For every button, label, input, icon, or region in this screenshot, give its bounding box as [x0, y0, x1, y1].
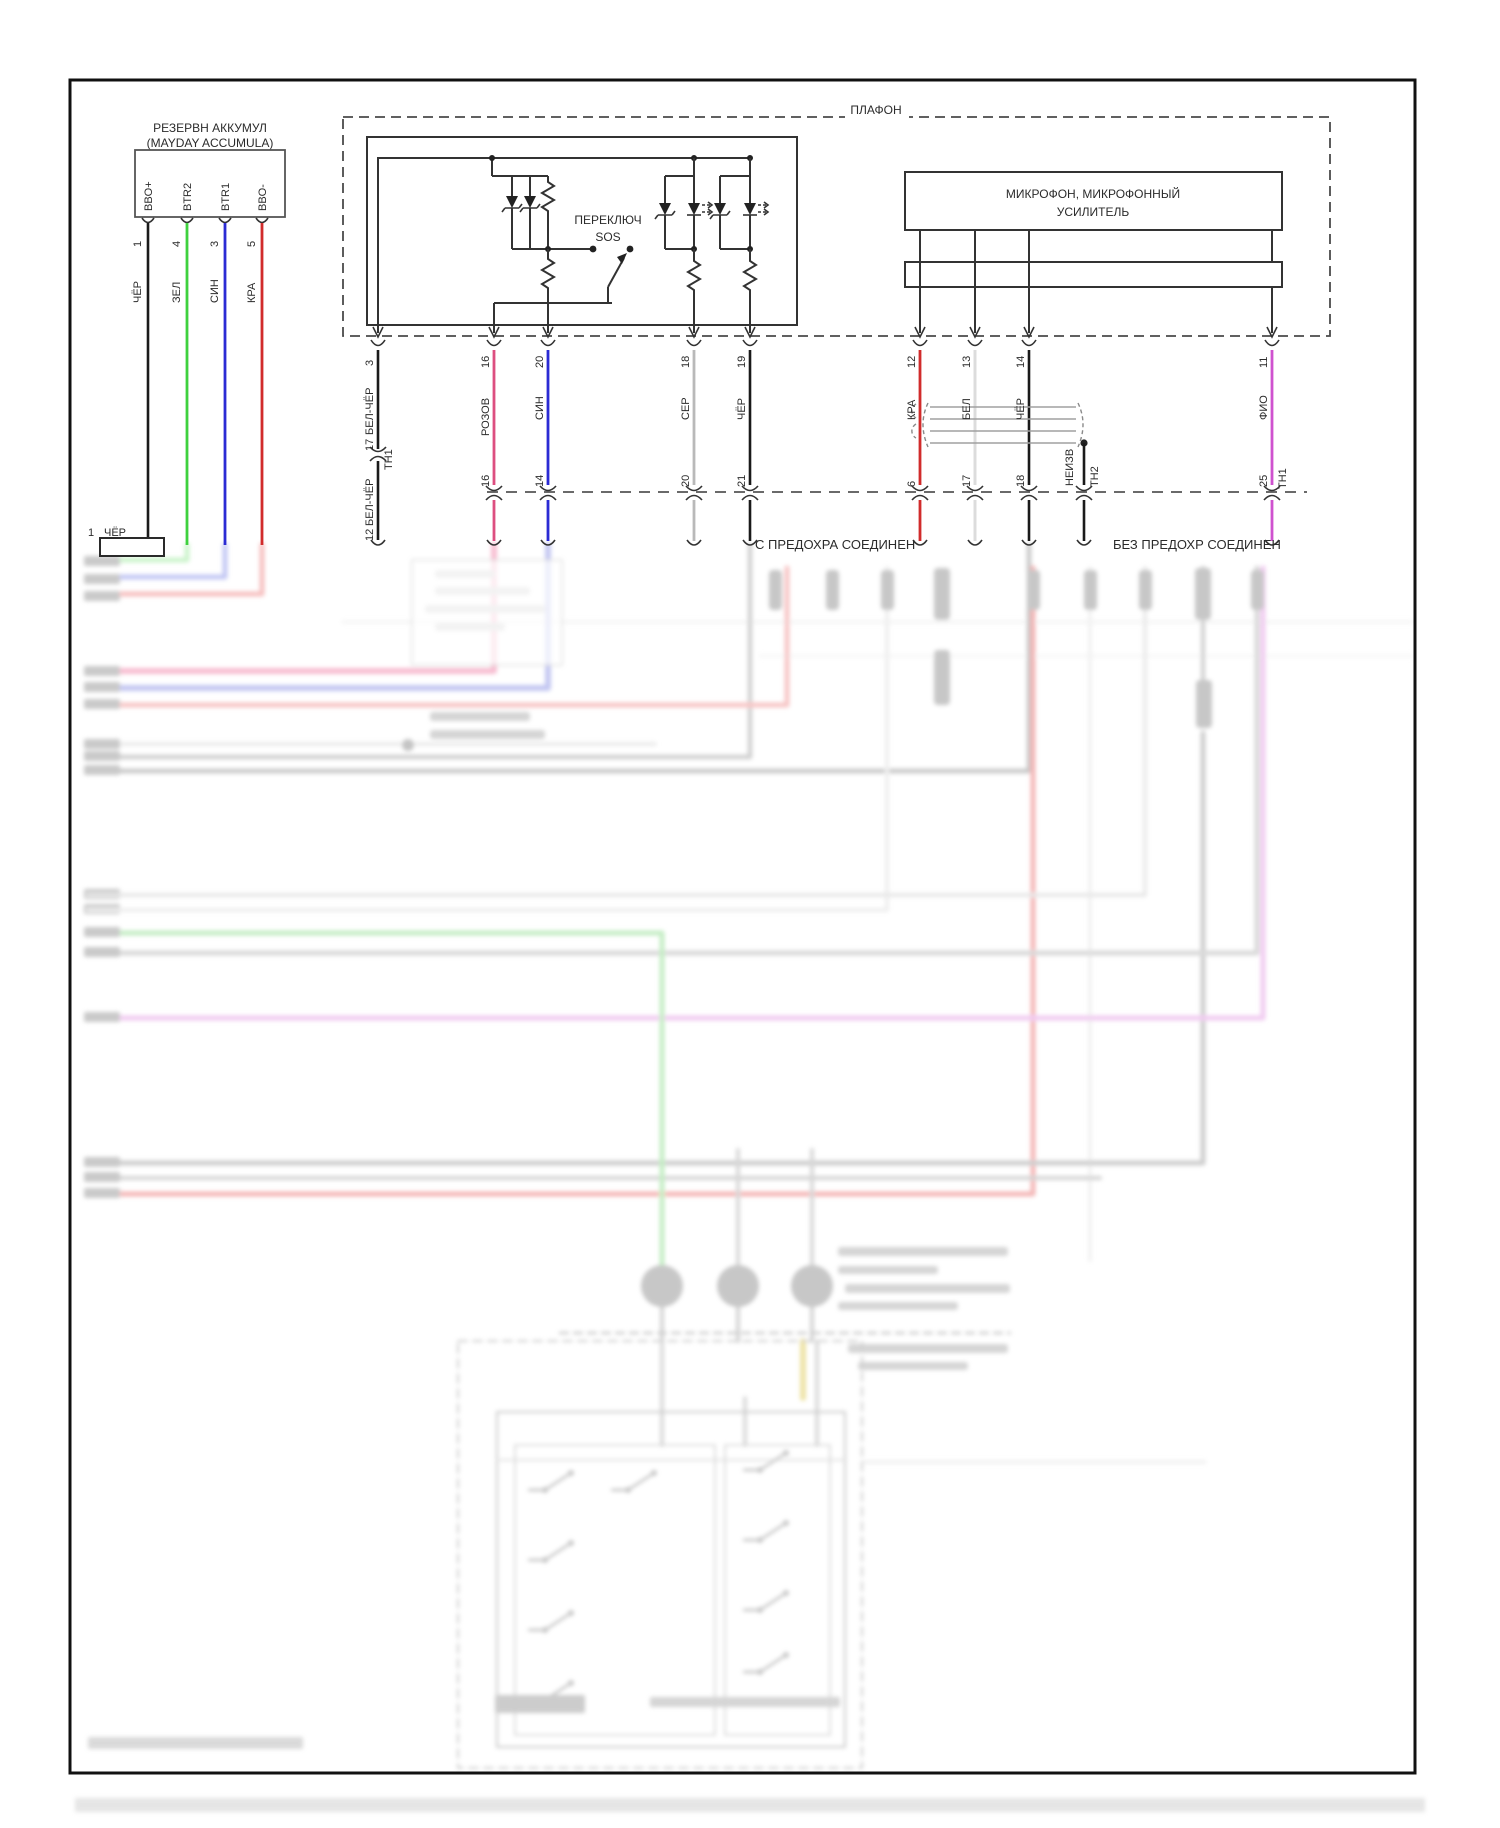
- pin-number-label: 3: [209, 241, 221, 247]
- connector-symbol: [142, 218, 268, 223]
- junction-note-with-fuse: С ПРЕДОХРА СОЕДИНЕН: [755, 537, 915, 552]
- shield-symbol: [912, 403, 1083, 447]
- microphone-box: [905, 172, 1282, 230]
- battery-terminal-label: BTR1: [220, 183, 232, 211]
- ground-connector: 1 ЧЁР: [88, 527, 164, 556]
- page-border: [70, 80, 1415, 1773]
- mayday-battery-component: РЕЗЕРВН АККУМУЛ (MAYDAY ACCUMULA) BBO+ B…: [132, 121, 285, 545]
- wire-color-label: БЕЛ-ЧЁР: [364, 479, 376, 526]
- microphone-shield-bar: [905, 262, 1282, 287]
- wire-color-label: БЕЛ: [961, 398, 973, 420]
- connector-name-label: ТН1: [383, 449, 395, 470]
- pin-number-label: 16: [480, 356, 492, 368]
- wire-color-label: СЕР: [680, 397, 692, 420]
- pin-number-label: 19: [736, 356, 748, 368]
- wire-color-label: РОЗОВ: [480, 398, 492, 436]
- ghost-splice-circle: [791, 1265, 833, 1307]
- pin-number-label: 25: [1258, 475, 1270, 487]
- led-icon: [688, 203, 700, 215]
- sos-switch-label-line1: ПЕРЕКЛЮЧ: [574, 213, 641, 227]
- pin-number-label: 4: [171, 241, 183, 247]
- pin-number-label: 18: [680, 356, 692, 368]
- connector-name-label: ТН1: [1277, 468, 1289, 489]
- battery-terminal-label: BBO-: [257, 184, 269, 211]
- battery-title-line1: РЕЗЕРВН АККУМУЛ: [153, 121, 267, 135]
- wire-color-label: КРА: [246, 282, 258, 303]
- resistor-icon: [744, 249, 756, 325]
- faded-background-diagram: [75, 545, 1425, 1812]
- wire-color-label: КРА: [906, 399, 918, 420]
- ghost-splice-circle: [641, 1265, 683, 1307]
- inline-connector-row: [486, 486, 1307, 500]
- microphone-label-line2: УСИЛИТЕЛЬ: [1057, 205, 1130, 219]
- resistor-icon: [542, 249, 554, 303]
- resistor-icon: [688, 249, 700, 325]
- resistor-icon: [542, 176, 554, 249]
- pin-number-label: 14: [1015, 356, 1027, 368]
- pin-number-label: 18: [1015, 475, 1027, 487]
- led-icon: [744, 203, 756, 215]
- ghost-splice-circle: [717, 1265, 759, 1307]
- microphone-label-line1: МИКРОФОН, МИКРОФОННЫЙ: [1006, 186, 1180, 201]
- junction-note-without-fuse: БЕЗ ПРЕДОХР СОЕДИНЕН: [1113, 537, 1281, 552]
- pin-number-label: 6: [906, 481, 918, 487]
- connector-name-label: ТН2: [1089, 466, 1101, 487]
- wire-color-label: ЧЁР: [736, 398, 748, 420]
- wiring-diagram-page: РЕЗЕРВН АККУМУЛ (MAYDAY ACCUMULA) BBO+ B…: [0, 0, 1500, 1828]
- pin-number-label: 11: [1258, 357, 1270, 368]
- wire-color-label: ЗЕЛ: [171, 282, 183, 303]
- pin-number-label: 20: [534, 356, 546, 368]
- pin-number-label: 21: [736, 475, 748, 487]
- wire-color-label: СИН: [209, 279, 221, 303]
- battery-title-line2: (MAYDAY ACCUMULA): [147, 136, 274, 150]
- sos-unit-box: [367, 137, 797, 325]
- wire-color-label: БЕЛ-ЧЁР: [364, 388, 376, 435]
- pin-number-label: 13: [961, 356, 973, 368]
- ground-connector-box: [100, 538, 164, 556]
- plafon-label: ПЛАФОН: [850, 103, 901, 117]
- pin-number-label: 14: [534, 475, 546, 487]
- wiring-diagram-canvas: РЕЗЕРВН АККУМУЛ (MAYDAY ACCUMULA) BBO+ B…: [0, 0, 1500, 1828]
- wire-color-label: СИН: [534, 396, 546, 420]
- wire-color-label: ЧЁР: [1015, 398, 1027, 420]
- plafon-component: ПЛАФОН ПЕРЕКЛЮЧ SOS: [343, 103, 1330, 336]
- pin-number-label: 3: [364, 360, 376, 366]
- ground-pin-label: 1: [88, 527, 94, 539]
- pin-number-label: 20: [680, 475, 692, 487]
- battery-terminal-label: BTR2: [182, 183, 194, 211]
- sos-switch-label-line2: SOS: [595, 230, 620, 244]
- pin-number-label: 5: [246, 241, 258, 247]
- pin-number-label: 1: [132, 241, 144, 247]
- pin-number-label: 12: [906, 356, 918, 368]
- harness-wires: [370, 350, 1279, 545]
- wire-color-label: ФИО: [1258, 395, 1270, 420]
- battery-terminal-label: BBO+: [143, 181, 155, 211]
- pin-number-label: 17: [364, 439, 376, 451]
- harness-labels: 3 БЕЛ-ЧЁР 17 ТН1 БЕЛ-ЧЁР 12 16 РОЗОВ 16 …: [364, 356, 1289, 541]
- ghost-switch-icons: [529, 1450, 789, 1703]
- pin-number-label: 16: [480, 475, 492, 487]
- pin-number-label: 12: [364, 529, 376, 541]
- plafon-dashed-box: [343, 117, 1330, 336]
- wire-color-label: ЧЁР: [132, 281, 144, 303]
- pin-number-label: 17: [961, 475, 973, 487]
- wire-color-label: НЕИЗВ: [1064, 449, 1076, 486]
